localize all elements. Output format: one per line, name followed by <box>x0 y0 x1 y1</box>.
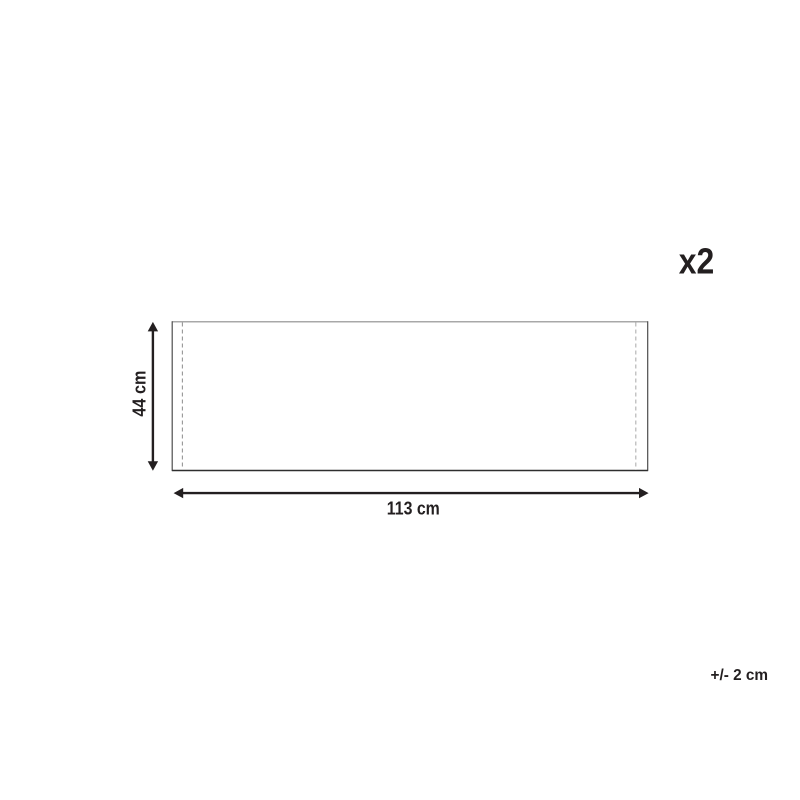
svg-text:113 cm: 113 cm <box>387 499 440 519</box>
svg-text:44 cm: 44 cm <box>129 371 149 417</box>
svg-text:x2: x2 <box>679 241 715 282</box>
svg-text:+/- 2 cm: +/- 2 cm <box>711 667 769 684</box>
